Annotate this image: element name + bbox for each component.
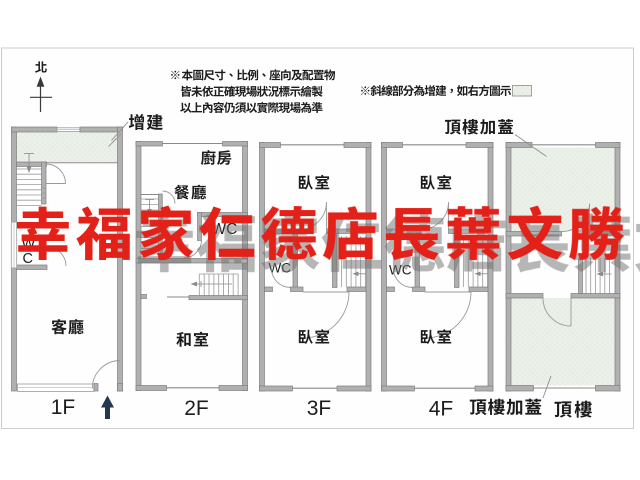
svg-text:3F: 3F: [307, 397, 332, 420]
svg-text:C: C: [23, 251, 33, 267]
svg-text:2F: 2F: [184, 397, 209, 420]
svg-text:4F: 4F: [429, 398, 454, 421]
svg-text:1F: 1F: [51, 396, 76, 419]
